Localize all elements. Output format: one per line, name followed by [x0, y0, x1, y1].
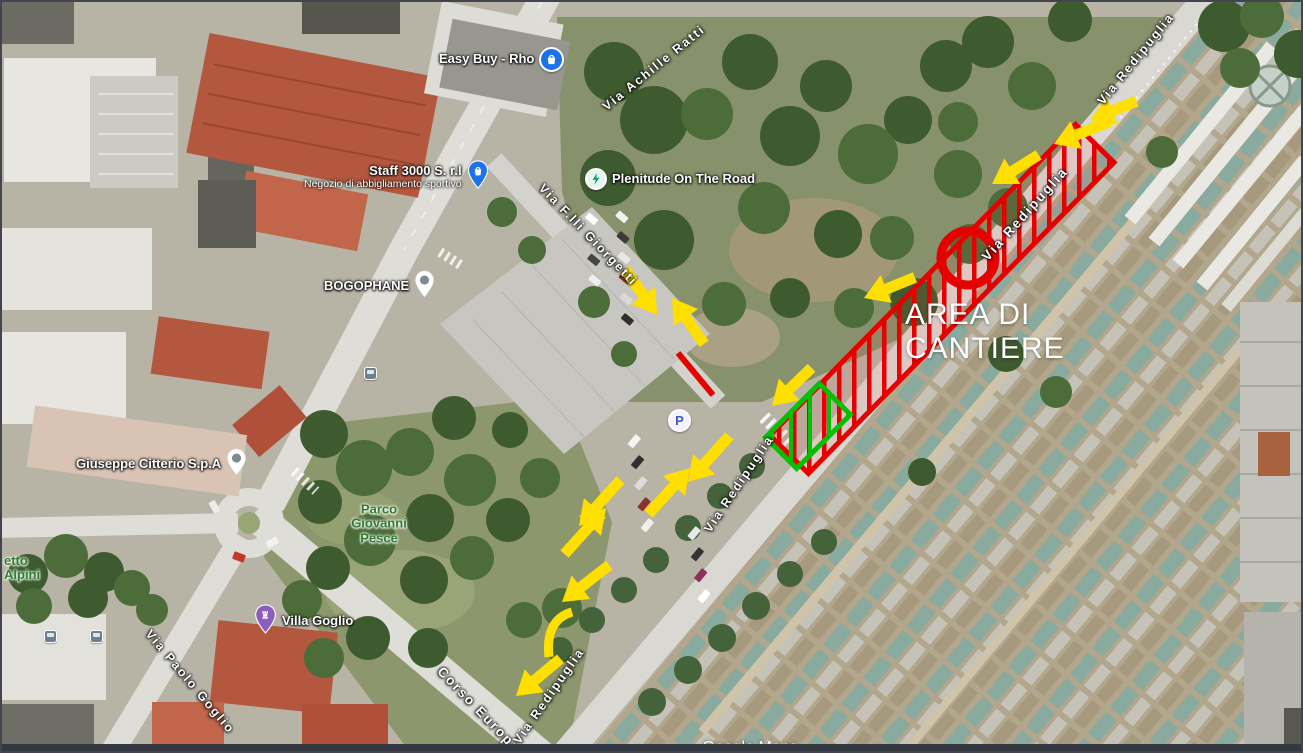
street-label-via-redipuglia-bottom: Via Redipuglia — [511, 646, 587, 746]
street-label-via-redipuglia-mid: Via Redipuglia — [702, 433, 776, 534]
construction-area-label: AREA DI CANTIERE — [905, 298, 1065, 366]
historic-landmark-pin-icon[interactable] — [254, 604, 277, 639]
transit-stop-icon[interactable] — [44, 630, 57, 643]
transit-stop-icon[interactable] — [364, 367, 377, 380]
poi-citterio-label: Giuseppe Citterio S.p.A — [76, 457, 221, 472]
generic-place-pin-icon[interactable] — [226, 448, 247, 481]
poi-plenitude-label: Plenitude On The Road — [612, 172, 755, 187]
poi-easy-buy-label: Easy Buy - Rho — [439, 52, 534, 67]
map-screenshot-frame: Via Achille Ratti Via F.lli Giorgetti Vi… — [0, 0, 1303, 753]
park-label-parco-giovanni-pesce: Parco Giovanni Pesce — [351, 503, 407, 546]
window-bottom-edge — [2, 744, 1301, 751]
street-label-via-redipuglia-top: Via Redipuglia — [1095, 11, 1176, 107]
street-label-via-flli-giorgetti: Via F.lli Giorgetti — [536, 182, 639, 288]
transit-stop-icon[interactable] — [90, 630, 103, 643]
poi-staff-3000-label: Staff 3000 S. r.l — [369, 164, 462, 179]
shopping-bag-pin-icon[interactable] — [467, 160, 489, 194]
poi-easy-buy[interactable]: Easy Buy - Rho — [439, 47, 564, 72]
poi-citterio[interactable]: Giuseppe Citterio S.p.A — [76, 448, 247, 481]
poi-staff-3000-subtitle: Negozio di abbigliamento sportivo — [304, 178, 462, 190]
generic-place-pin-icon[interactable] — [414, 270, 435, 303]
park-label-alpini: etto Alpini — [4, 554, 40, 583]
map-labels-layer: Via Achille Ratti Via F.lli Giorgetti Vi… — [2, 2, 1301, 751]
poi-bogophane-label: BOGOPHANE — [324, 279, 409, 294]
poi-villa-goglio[interactable]: Villa Goglio — [254, 604, 353, 639]
poi-plenitude[interactable]: Plenitude On The Road — [585, 168, 755, 190]
shopping-bag-circle-icon[interactable] — [539, 47, 564, 72]
parking-icon[interactable]: P — [668, 409, 691, 432]
street-label-via-achille-ratti: Via Achille Ratti — [600, 23, 707, 113]
street-label-via-redipuglia-strip: Via Redipuglia — [980, 165, 1071, 264]
poi-bogophane[interactable]: BOGOPHANE — [324, 270, 435, 303]
street-label-via-paolo-goglio: Via Paolo Goglio — [143, 628, 237, 736]
ev-charging-icon[interactable] — [585, 168, 607, 190]
poi-staff-3000[interactable]: Staff 3000 S. r.l Negozio di abbigliamen… — [304, 160, 489, 194]
street-label-corso-europa: Corso Europa — [435, 665, 523, 753]
poi-villa-goglio-label: Villa Goglio — [282, 614, 353, 629]
